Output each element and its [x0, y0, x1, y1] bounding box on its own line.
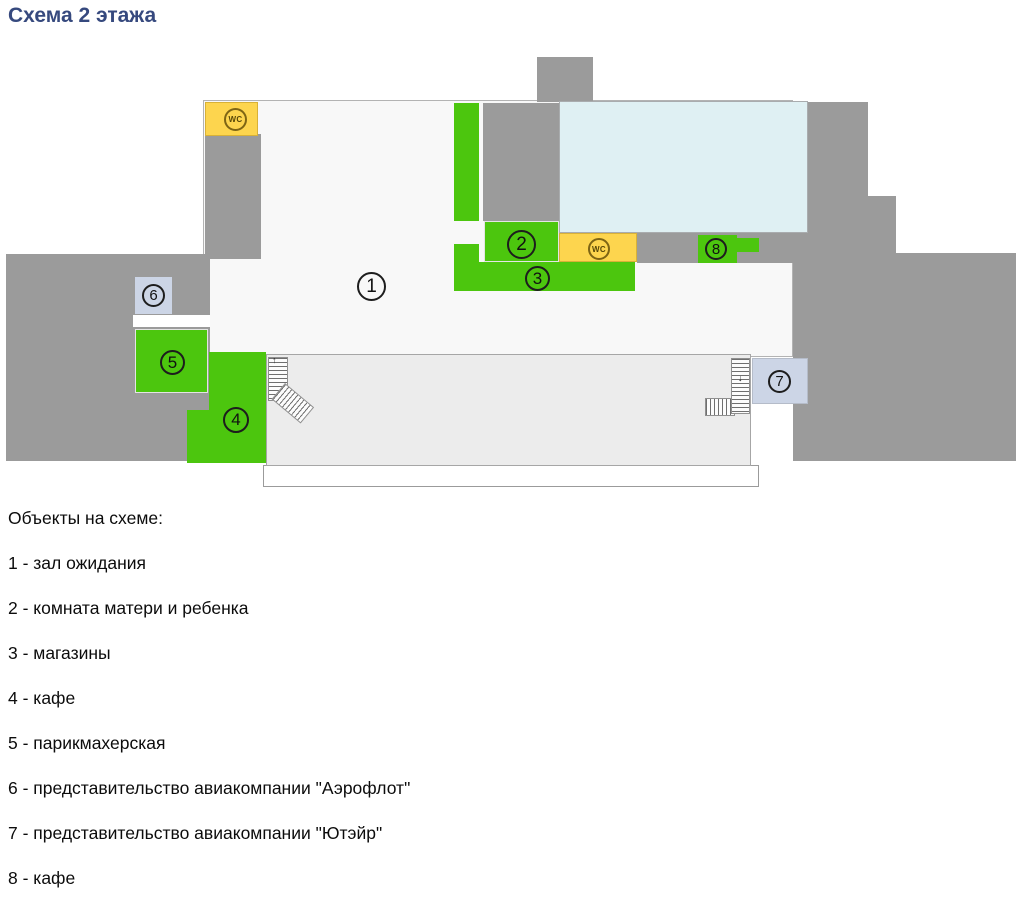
- cafe-4-area-upper: [209, 352, 266, 413]
- legend: Объекты на схеме: 1 - зал ожидания 2 - к…: [8, 508, 410, 913]
- marker-6-aeroflot: 6: [142, 284, 165, 307]
- marker-5-hairdresser: 5: [160, 350, 185, 375]
- marker-4-cafe: 4: [223, 407, 249, 433]
- marker-2-mother-child: 2: [507, 230, 536, 259]
- passage-gap: [133, 315, 210, 327]
- shop-strip-vertical: [454, 103, 479, 221]
- wall-block-right-mid: [808, 196, 896, 253]
- legend-item-7: 7 - представительство авиакомпании "Ютэй…: [8, 823, 410, 843]
- wall-block-right-bottom: [793, 253, 1016, 461]
- stairs-right-ladder: [731, 358, 750, 414]
- legend-item-2: 2 - комната матери и ребенка: [8, 598, 410, 618]
- marker-7-utair: 7: [768, 370, 791, 393]
- legend-item-3: 3 - магазины: [8, 643, 410, 663]
- cafe-8-area-tab: [737, 238, 759, 252]
- marker-3-shops: 3: [525, 266, 550, 291]
- wall-block-mid: [483, 103, 559, 221]
- wall-column-left: [205, 134, 261, 259]
- gallery-outline-strip: [263, 465, 759, 487]
- gallery-corridor: [266, 354, 751, 466]
- legend-item-4: 4 - кафе: [8, 688, 410, 708]
- legend-item-1: 1 - зал ожидания: [8, 553, 410, 573]
- marker-1-waiting-hall: 1: [357, 272, 386, 301]
- wc-icon-left: WC: [224, 108, 247, 131]
- wall-block-right-top: [808, 102, 868, 196]
- floor-plan: ↑ ↓ WC WC 1 2 3 4 5 6 7 8: [0, 0, 1024, 500]
- legend-heading: Объекты на схеме:: [8, 508, 410, 529]
- hall-blue-area: [559, 101, 808, 233]
- legend-item-6: 6 - представительство авиакомпании "Аэро…: [8, 778, 410, 798]
- wc-icon-right: WC: [588, 238, 610, 260]
- wall-block-top: [537, 57, 593, 102]
- stairs-right-arrow-icon: ↓: [738, 374, 743, 383]
- stairs-left-arrow-icon: ↑: [272, 356, 277, 365]
- legend-item-5: 5 - парикмахерская: [8, 733, 410, 753]
- marker-8-cafe: 8: [705, 238, 727, 260]
- legend-item-8: 8 - кафе: [8, 868, 410, 888]
